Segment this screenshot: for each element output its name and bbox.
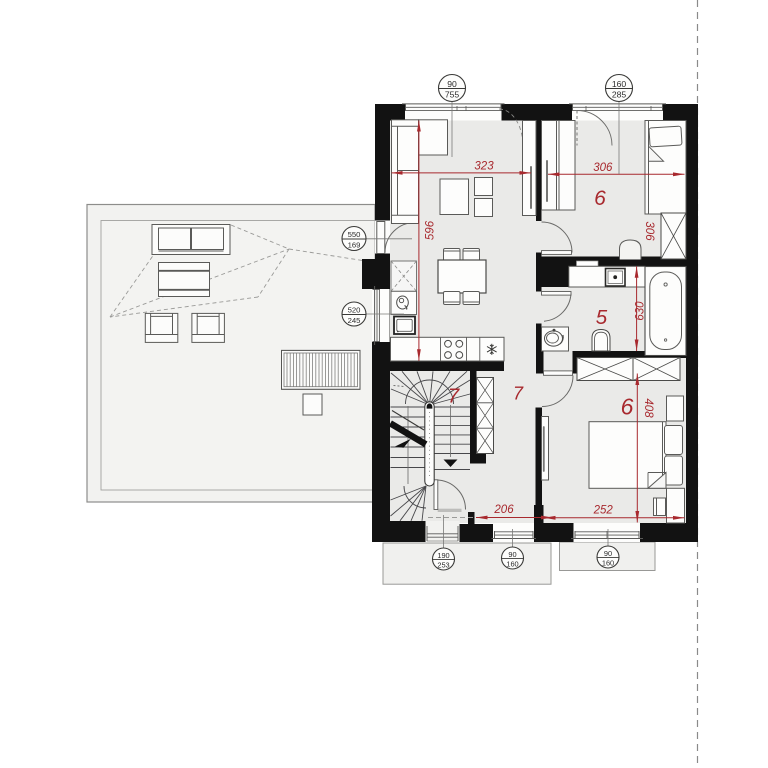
svg-text:245: 245 (348, 316, 361, 325)
svg-text:206: 206 (493, 504, 514, 516)
svg-text:90: 90 (447, 79, 457, 89)
svg-text:252: 252 (593, 504, 614, 516)
svg-text:160: 160 (506, 560, 518, 569)
svg-text:7: 7 (448, 385, 461, 408)
svg-text:90: 90 (508, 550, 516, 559)
svg-text:6: 6 (621, 394, 634, 420)
svg-text:306: 306 (643, 221, 655, 241)
svg-text:160: 160 (602, 559, 614, 568)
svg-text:755: 755 (445, 90, 460, 100)
svg-text:306: 306 (593, 162, 613, 174)
svg-text:90: 90 (604, 549, 612, 558)
svg-text:630: 630 (635, 301, 647, 321)
svg-text:5: 5 (596, 306, 608, 329)
svg-text:550: 550 (348, 230, 361, 239)
svg-text:323: 323 (474, 161, 494, 173)
svg-text:190: 190 (437, 551, 449, 560)
svg-text:520: 520 (348, 306, 361, 315)
svg-text:7: 7 (513, 384, 524, 404)
svg-text:169: 169 (348, 240, 361, 249)
svg-text:160: 160 (612, 79, 627, 89)
svg-text:596: 596 (424, 220, 436, 240)
svg-text:6: 6 (594, 187, 606, 210)
svg-text:285: 285 (612, 90, 627, 100)
svg-text:253: 253 (437, 561, 449, 570)
svg-text:408: 408 (642, 398, 654, 418)
